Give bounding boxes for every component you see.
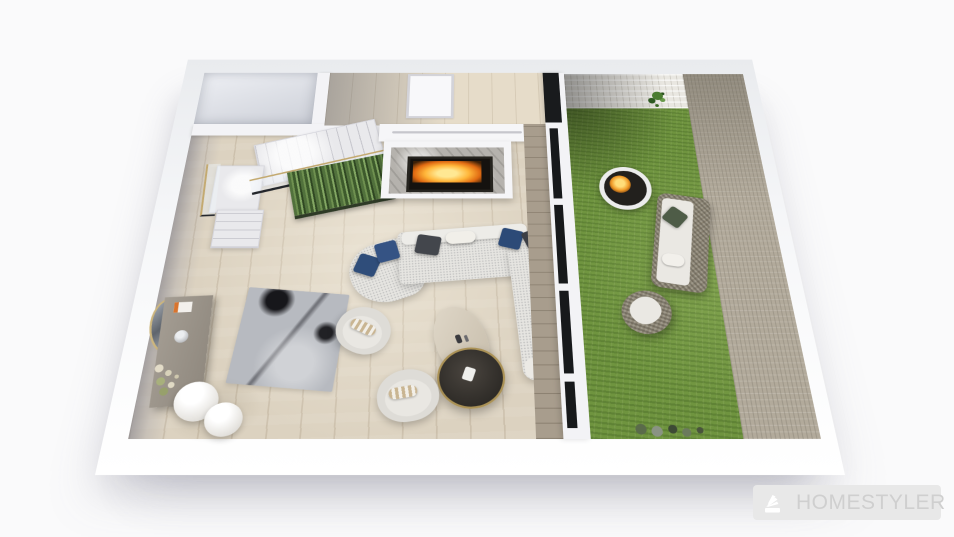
homestyler-watermark-text: HOMESTYLER: [796, 491, 946, 515]
staircase-lower-flight: [210, 210, 264, 249]
outdoor-chair-cushion: [624, 292, 667, 330]
fire-pit-fire: [609, 176, 632, 193]
homestyler-watermark: HOMESTYLER: [753, 485, 941, 520]
fireplace-fire: [412, 161, 481, 183]
decor-box: [173, 302, 192, 313]
white-interior-door: [406, 74, 454, 118]
render-canvas: [95, 60, 845, 475]
table-decor: [461, 366, 476, 382]
round-coffee-table: [436, 348, 505, 409]
vase-with-flowers: [154, 364, 164, 372]
firebox: [406, 156, 493, 192]
mantel-groove: [392, 131, 522, 133]
glass-door-frame: [543, 73, 562, 123]
floorplan: [95, 60, 845, 475]
table-decor: [455, 334, 463, 344]
charcoal-pillow: [414, 234, 442, 256]
outdoor-wicker-sofa: [650, 192, 710, 294]
storage-room: [194, 73, 318, 124]
homestyler-logo-icon: [763, 491, 789, 515]
decor-tray: [173, 330, 189, 343]
garden-border-shrubs: [635, 424, 647, 435]
wall-hanging-plant: [651, 92, 663, 100]
